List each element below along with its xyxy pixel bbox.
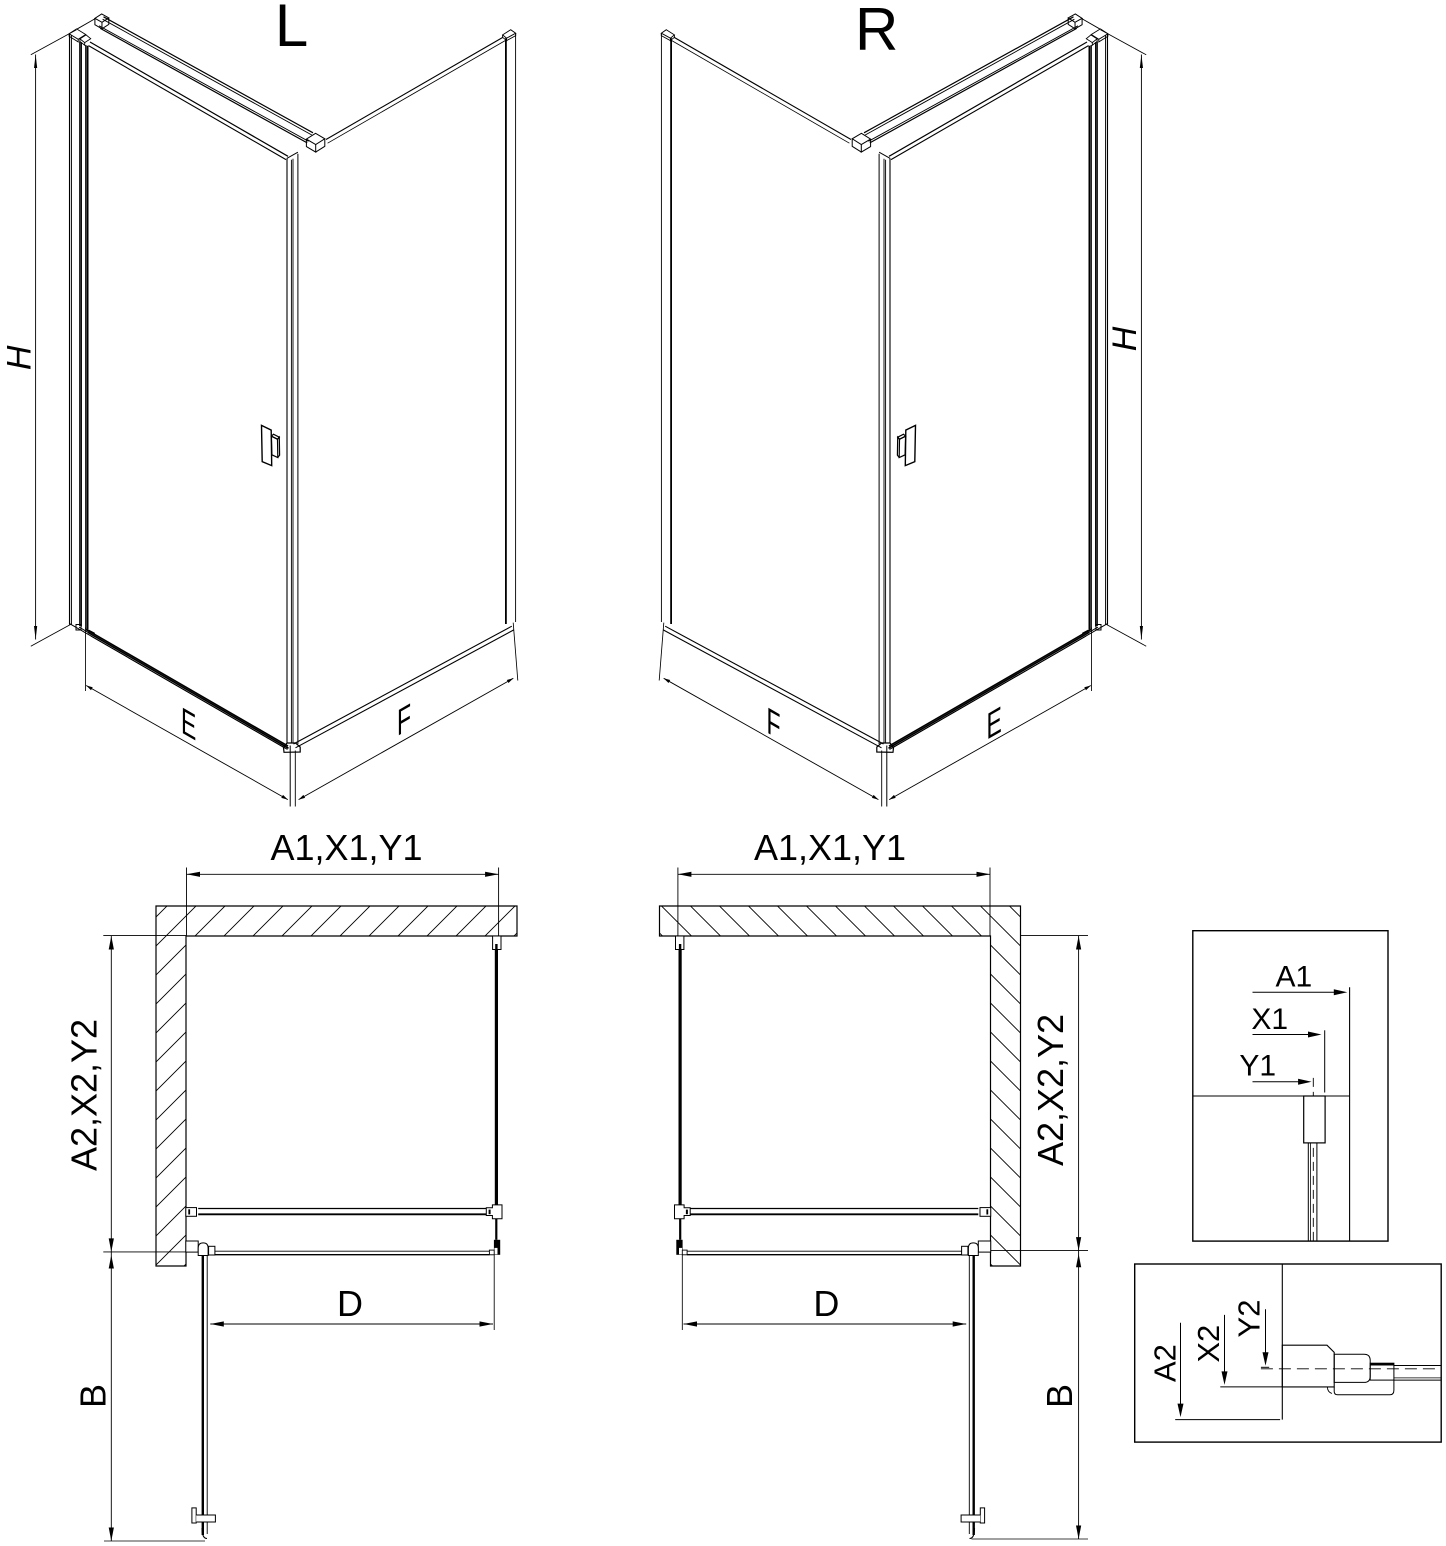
svg-text:D: D (813, 1283, 839, 1324)
svg-text:H: H (0, 345, 38, 370)
svg-text:A1,X1,Y1: A1,X1,Y1 (270, 827, 422, 868)
svg-text:X2: X2 (1191, 1325, 1226, 1363)
svg-text:R: R (855, 0, 898, 63)
svg-text:F: F (397, 695, 411, 744)
svg-text:X1: X1 (1251, 1003, 1288, 1036)
svg-text:A2,X2,Y2: A2,X2,Y2 (1030, 1014, 1071, 1166)
svg-text:B: B (1039, 1384, 1080, 1408)
svg-text:A2,X2,Y2: A2,X2,Y2 (63, 1019, 104, 1171)
svg-text:E: E (987, 698, 1002, 748)
svg-text:F: F (767, 699, 781, 748)
svg-text:Y1: Y1 (1239, 1050, 1276, 1083)
svg-text:A1,X1,Y1: A1,X1,Y1 (754, 827, 906, 868)
svg-text:Y2: Y2 (1231, 1300, 1266, 1338)
svg-text:H: H (1106, 326, 1144, 351)
svg-text:D: D (337, 1283, 363, 1324)
svg-text:A1: A1 (1275, 960, 1312, 993)
svg-text:E: E (181, 699, 196, 749)
svg-text:L: L (275, 0, 308, 59)
svg-text:B: B (72, 1384, 113, 1408)
svg-text:A2: A2 (1147, 1344, 1182, 1382)
